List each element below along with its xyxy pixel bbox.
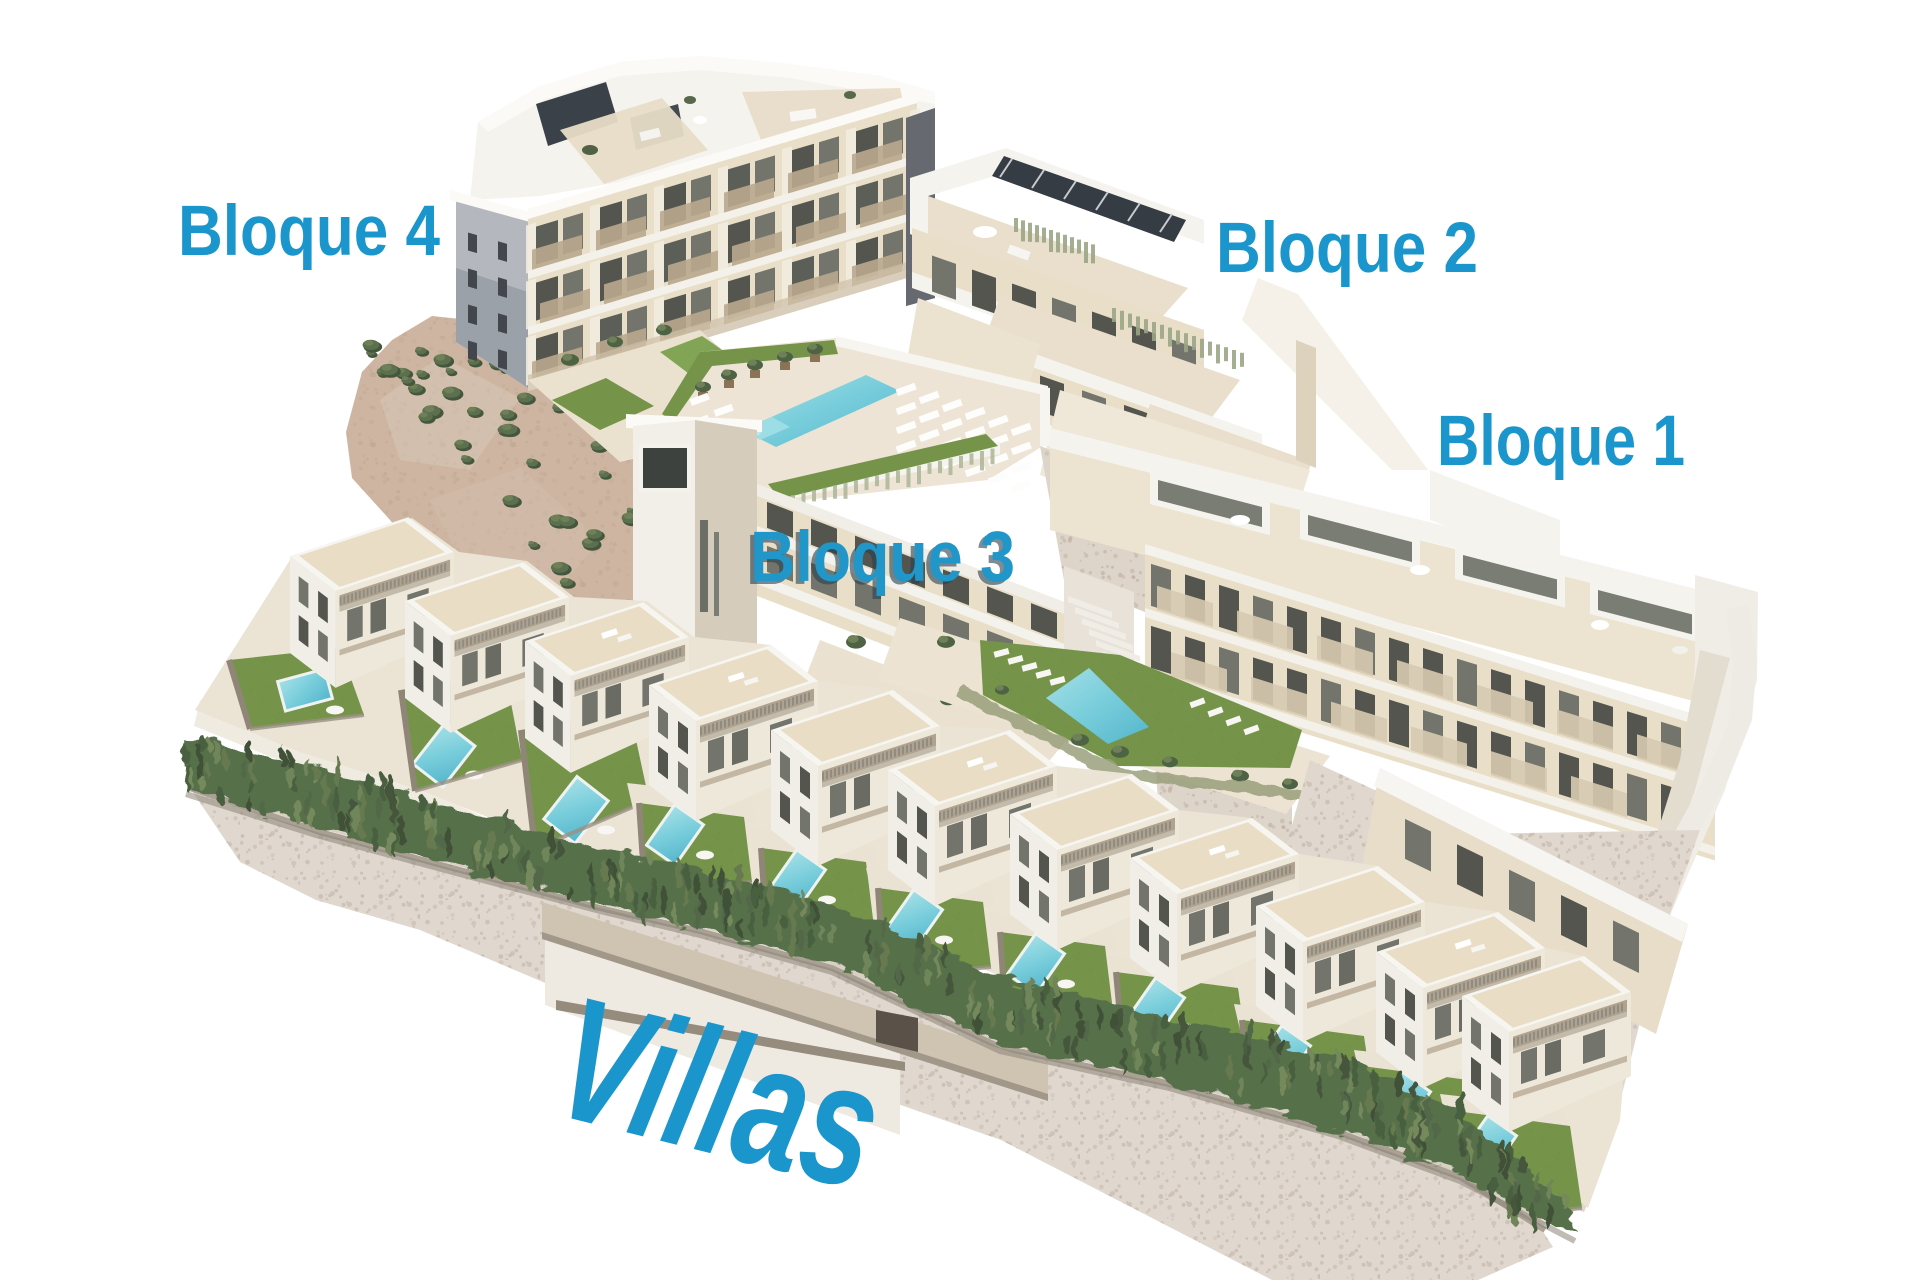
svg-text:Bloque 4: Bloque 4 (178, 192, 440, 271)
svg-text:Bloque 2: Bloque 2 (1216, 209, 1478, 288)
svg-text:Bloque 1: Bloque 1 (1437, 402, 1685, 481)
svg-text:Bloque 3: Bloque 3 (750, 518, 1015, 597)
